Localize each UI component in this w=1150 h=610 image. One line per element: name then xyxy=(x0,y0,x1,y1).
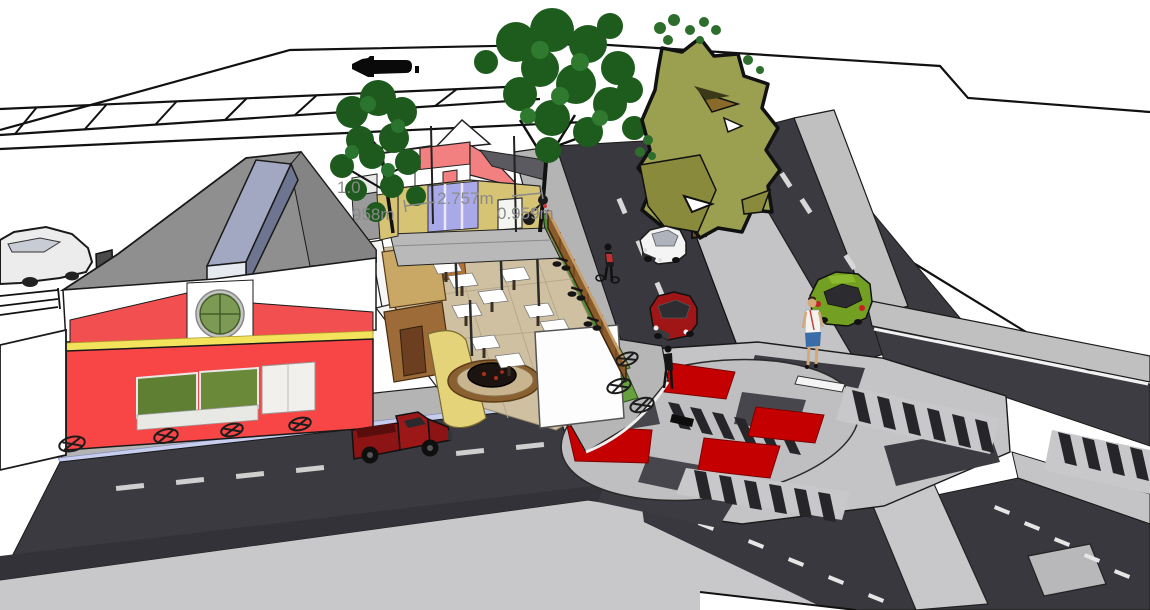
dim-label-3: 2.757m xyxy=(437,189,494,208)
gray-car xyxy=(0,227,92,287)
scene-canvas[interactable]: 1.0 958m 2.757m 0.959m xyxy=(0,0,1150,610)
timber-door xyxy=(400,326,426,376)
dim-label-1: 1.0 xyxy=(337,178,361,197)
model-viewport[interactable]: 1.0 958m 2.757m 0.959m xyxy=(0,0,1150,610)
red-car xyxy=(650,292,697,340)
red-building xyxy=(0,152,376,470)
bottle-silhouette xyxy=(352,56,419,77)
dim-label-2: 958m xyxy=(352,205,395,224)
west-wall xyxy=(0,330,66,470)
dim-label-4: 0.959m xyxy=(497,204,554,223)
